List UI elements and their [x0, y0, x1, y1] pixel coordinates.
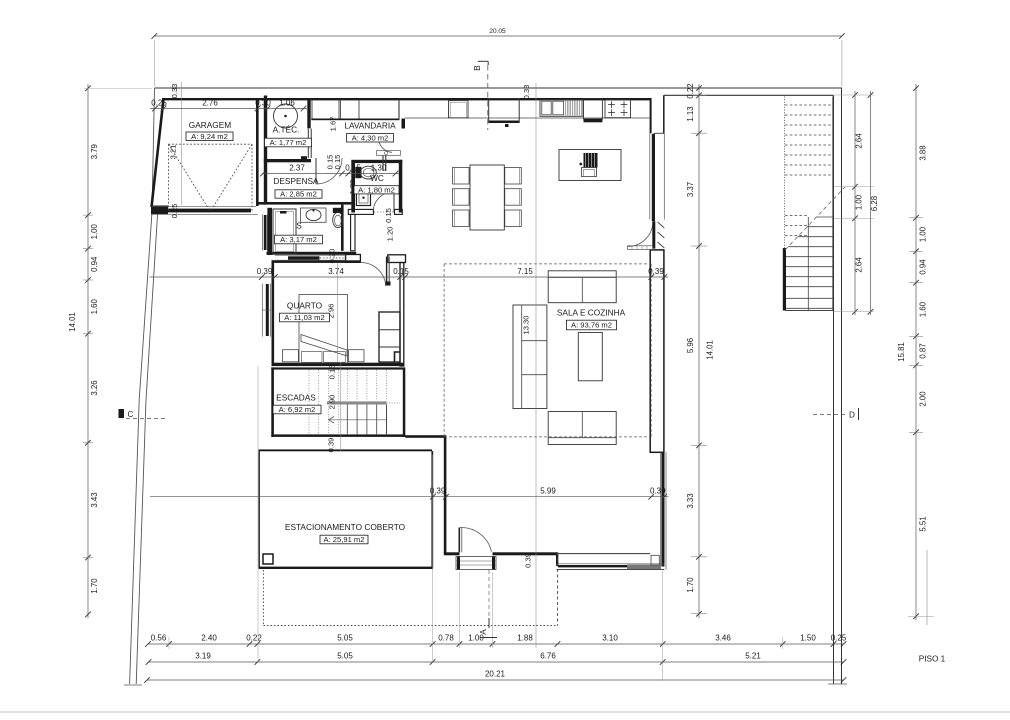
svg-text:0.20: 0.20	[328, 249, 337, 264]
svg-text:2.37: 2.37	[289, 164, 305, 173]
svg-text:A: 1,80 m2: A: 1,80 m2	[358, 186, 395, 195]
svg-text:3.37: 3.37	[686, 182, 695, 197]
svg-text:2.64: 2.64	[855, 257, 864, 273]
svg-text:0.33: 0.33	[522, 85, 531, 100]
svg-text:0.39: 0.39	[648, 267, 664, 276]
svg-text:2.76: 2.76	[202, 99, 218, 108]
svg-text:1.00: 1.00	[90, 224, 99, 240]
svg-text:0.94: 0.94	[90, 256, 99, 272]
svg-text:3.19: 3.19	[195, 652, 211, 661]
svg-text:0.39: 0.39	[430, 487, 446, 496]
svg-text:1.00: 1.00	[919, 226, 928, 242]
svg-text:A: 2,85 m2: A: 2,85 m2	[280, 190, 317, 199]
svg-text:3.26: 3.26	[90, 380, 99, 395]
svg-text:0.15: 0.15	[345, 164, 361, 173]
svg-text:C: C	[128, 410, 134, 419]
svg-text:3.10: 3.10	[602, 634, 618, 643]
svg-text:1.50: 1.50	[800, 634, 816, 643]
svg-text:1.20: 1.20	[386, 227, 395, 242]
svg-text:15.81: 15.81	[897, 342, 906, 362]
svg-text:DESPENSA: DESPENSA	[273, 176, 319, 186]
svg-text:0.39: 0.39	[650, 487, 666, 496]
svg-text:6.28: 6.28	[870, 196, 879, 211]
svg-text:1.88: 1.88	[517, 634, 533, 643]
svg-text:5.51: 5.51	[919, 516, 928, 531]
svg-text:2.00: 2.00	[919, 391, 928, 407]
svg-text:0.94: 0.94	[919, 259, 928, 275]
svg-text:ESTACIONAMENTO COBERTO: ESTACIONAMENTO COBERTO	[285, 522, 406, 532]
svg-text:3.74: 3.74	[328, 267, 344, 276]
svg-text:PISO 1: PISO 1	[919, 655, 946, 664]
svg-text:3.46: 3.46	[715, 634, 731, 643]
svg-text:14.01: 14.01	[68, 312, 77, 332]
svg-text:5.99: 5.99	[540, 487, 556, 496]
svg-text:2.40: 2.40	[201, 634, 217, 643]
svg-text:A: 3,17 m2: A: 3,17 m2	[280, 235, 317, 244]
svg-text:A: 11,03 m2: A: 11,03 m2	[284, 313, 324, 322]
svg-text:7.15: 7.15	[517, 267, 533, 276]
svg-text:1.70: 1.70	[90, 578, 99, 594]
svg-text:0.56: 0.56	[151, 634, 167, 643]
svg-text:5.96: 5.96	[686, 338, 695, 353]
svg-text:0.22: 0.22	[246, 634, 262, 643]
svg-text:0.30: 0.30	[255, 99, 271, 108]
svg-text:1.60: 1.60	[90, 299, 99, 315]
svg-text:13.30: 13.30	[522, 315, 531, 334]
svg-text:WC: WC	[370, 173, 384, 183]
svg-text:1.30: 1.30	[371, 164, 387, 173]
svg-text:A: 4,30 m2: A: 4,30 m2	[352, 134, 389, 143]
svg-text:3.33: 3.33	[686, 493, 695, 508]
svg-text:3.79: 3.79	[90, 144, 99, 159]
svg-text:5.05: 5.05	[337, 634, 353, 643]
svg-text:A: 1,77 m2: A: 1,77 m2	[270, 138, 307, 147]
svg-text:A: 93,76 m2: A: 93,76 m2	[571, 321, 612, 330]
svg-text:3.43: 3.43	[90, 492, 99, 507]
svg-text:0.78: 0.78	[438, 634, 454, 643]
svg-text:0.25: 0.25	[151, 99, 167, 108]
svg-text:20.21: 20.21	[485, 670, 506, 679]
svg-text:2.64: 2.64	[855, 133, 864, 149]
svg-text:S: S	[296, 221, 302, 231]
svg-text:20.05: 20.05	[489, 28, 506, 35]
svg-text:6.76: 6.76	[540, 652, 556, 661]
svg-text:0.25: 0.25	[831, 634, 847, 643]
svg-text:2.90: 2.90	[328, 395, 337, 410]
svg-text:A: 6,92 m2: A: 6,92 m2	[279, 405, 316, 414]
svg-text:5.21: 5.21	[745, 652, 761, 661]
svg-text:A: A	[479, 629, 488, 635]
svg-text:0.39: 0.39	[257, 267, 273, 276]
svg-text:14.01: 14.01	[706, 340, 715, 360]
svg-text:0.22: 0.22	[686, 83, 695, 98]
svg-text:1.67: 1.67	[329, 117, 338, 132]
svg-text:0.15: 0.15	[384, 208, 393, 223]
svg-text:1.13: 1.13	[686, 106, 695, 121]
svg-text:ESCADAS: ESCADAS	[276, 393, 316, 403]
svg-text:3.21: 3.21	[169, 145, 178, 160]
svg-text:QUARTO: QUARTO	[287, 301, 323, 311]
svg-text:LAVANDARIA: LAVANDARIA	[344, 121, 396, 131]
svg-text:0.33: 0.33	[170, 84, 179, 99]
svg-text:1.70: 1.70	[686, 577, 695, 593]
svg-text:0.87: 0.87	[919, 343, 928, 358]
svg-text:0.15: 0.15	[333, 155, 342, 170]
svg-text:A.TÉC.: A.TÉC.	[273, 125, 300, 135]
svg-text:A: 9,24 m2: A: 9,24 m2	[191, 132, 228, 141]
svg-text:1.06: 1.06	[279, 99, 295, 108]
svg-text:A: 25,91 m2: A: 25,91 m2	[324, 535, 365, 544]
svg-text:D: D	[849, 411, 855, 420]
svg-text:3.88: 3.88	[919, 145, 928, 160]
svg-text:1.60: 1.60	[919, 301, 928, 317]
svg-text:0.15: 0.15	[328, 365, 337, 380]
svg-text:0.39: 0.39	[327, 438, 336, 453]
svg-text:0.15: 0.15	[393, 267, 409, 276]
svg-text:0.39: 0.39	[524, 553, 533, 568]
svg-text:GARAGEM: GARAGEM	[189, 120, 232, 130]
svg-text:1.00: 1.00	[855, 194, 864, 210]
svg-text:B: B	[473, 65, 482, 71]
svg-text:SALA E COZINHA: SALA E COZINHA	[557, 308, 626, 318]
svg-text:5.05: 5.05	[337, 652, 353, 661]
svg-text:0.25: 0.25	[170, 204, 179, 219]
